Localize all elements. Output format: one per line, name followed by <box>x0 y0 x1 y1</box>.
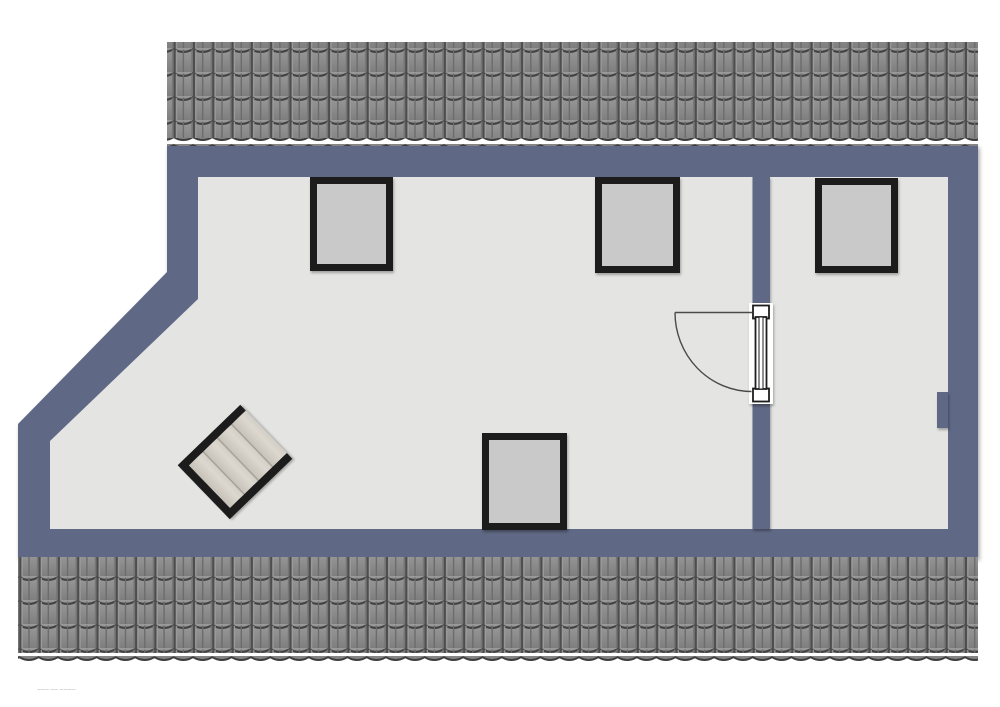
skylight-top-middle[interactable] <box>599 181 677 270</box>
door-frame-bottom <box>753 389 769 402</box>
fine-print-text: ——— —— ———— <box>37 688 76 692</box>
floorplan-canvas: ——— —— ———— <box>0 0 1000 707</box>
divider-wall-lower <box>753 402 771 529</box>
floorplan-drawing <box>0 0 1000 707</box>
roof-band-top <box>167 42 978 146</box>
skylight-top-left[interactable] <box>314 181 390 268</box>
skylight-right-room[interactable] <box>819 182 895 270</box>
skylight-bottom[interactable] <box>486 437 564 527</box>
door-leaf-inner <box>759 317 763 389</box>
divider-wall-upper <box>753 177 771 305</box>
roof-band-bottom <box>18 557 978 661</box>
